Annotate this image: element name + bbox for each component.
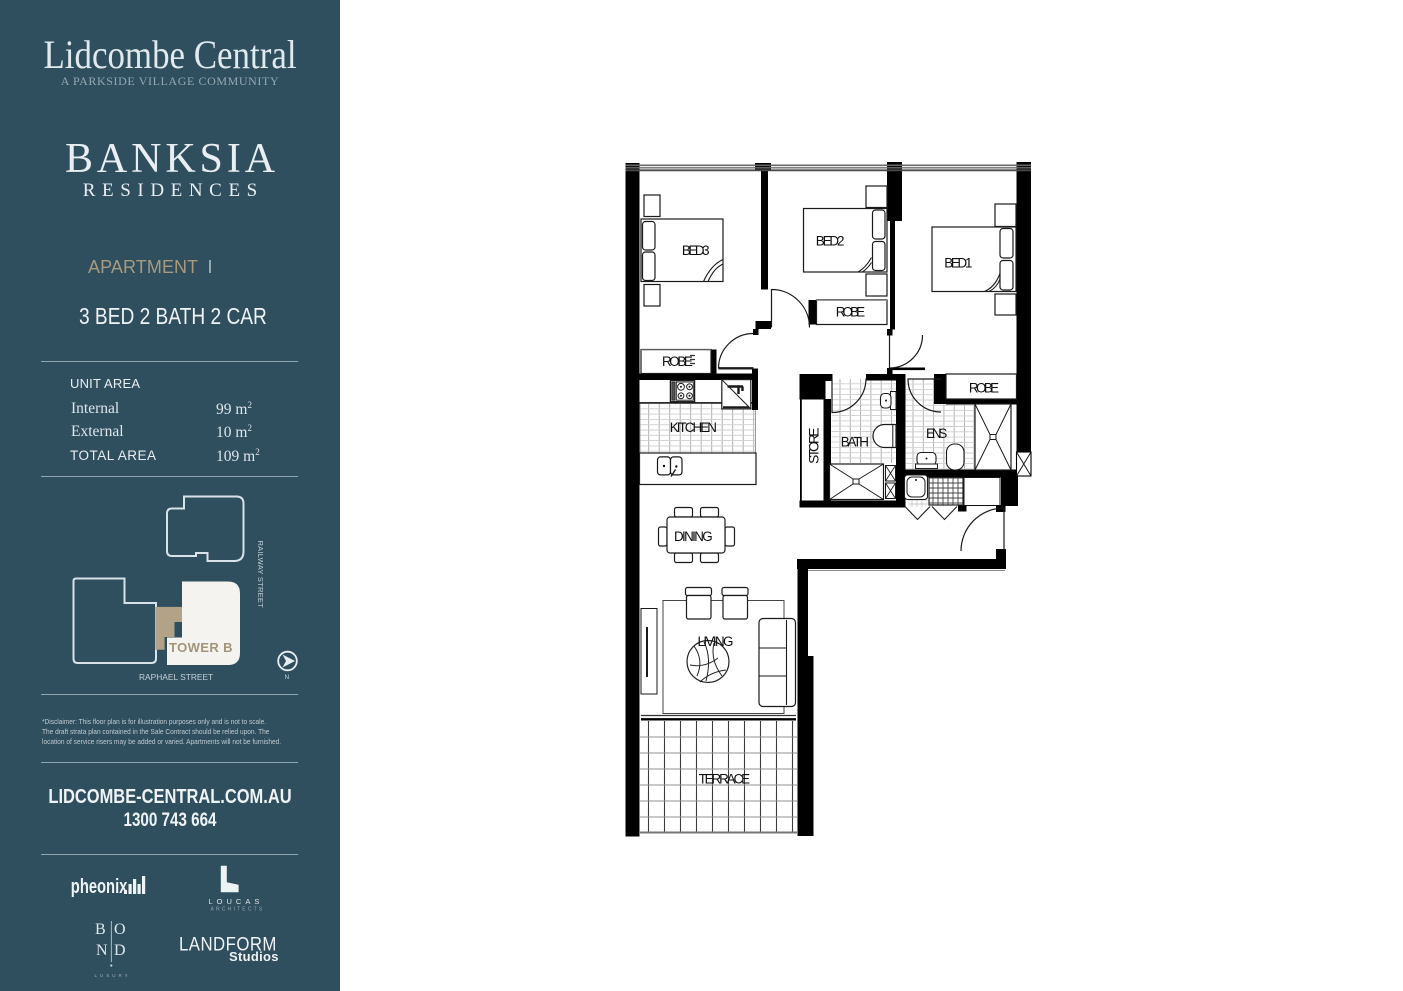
svg-text:LOUCAS: LOUCAS [209, 897, 264, 906]
svg-text:B: B [95, 921, 106, 938]
svg-text:DINING: DINING [674, 529, 713, 544]
svg-text:D: D [114, 942, 126, 959]
svg-text:ROBE: ROBE [836, 305, 865, 320]
svg-text:ENS: ENS [926, 426, 947, 441]
svg-text:ARCHITECTS: ARCHITECTS [211, 907, 265, 913]
svg-text:BED1: BED1 [944, 256, 972, 271]
svg-text:N: N [96, 942, 108, 959]
svg-text:O: O [114, 921, 126, 938]
svg-text:ROBE: ROBE [662, 354, 693, 369]
svg-text:pheonix: pheonix [71, 874, 128, 897]
svg-text:ROBE: ROBE [969, 381, 999, 396]
svg-text:BATH: BATH [841, 435, 869, 450]
svg-text:KITCHEN: KITCHEN [670, 420, 717, 435]
svg-text:LUXURY: LUXURY [95, 973, 131, 978]
svg-text:Studios: Studios [229, 949, 279, 964]
svg-text:RAILWAY STREET: RAILWAY STREET [256, 541, 265, 609]
svg-text:TOWER B: TOWER B [169, 640, 233, 655]
svg-text:BED2: BED2 [816, 234, 845, 249]
svg-text:BED3: BED3 [682, 243, 710, 258]
svg-text:N: N [285, 674, 290, 681]
svg-text:STORE: STORE [807, 428, 822, 464]
svg-text:LIVING: LIVING [698, 634, 734, 649]
svg-text:RAPHAEL STREET: RAPHAEL STREET [139, 672, 213, 682]
svg-text:TERRACE: TERRACE [699, 772, 750, 787]
